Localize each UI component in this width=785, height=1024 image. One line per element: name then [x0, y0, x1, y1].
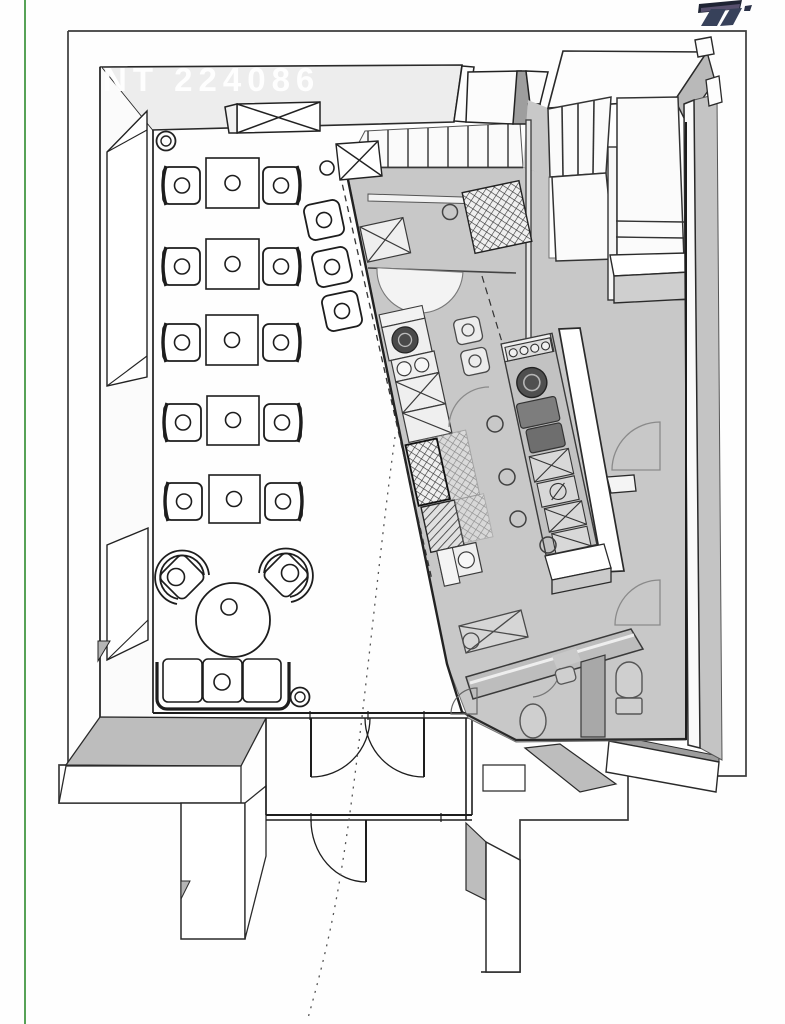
svg-text:NT 224086: NT 224086: [103, 61, 320, 98]
